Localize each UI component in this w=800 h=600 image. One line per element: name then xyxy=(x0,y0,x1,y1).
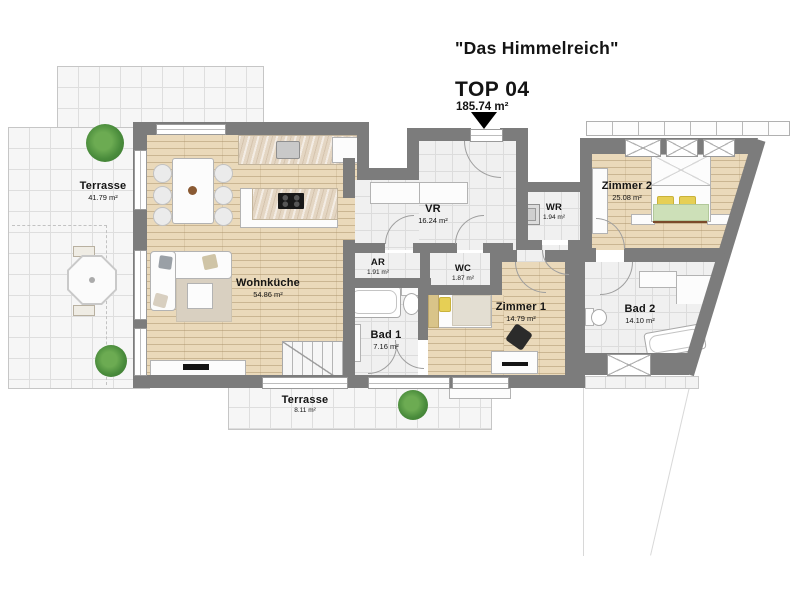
blanket xyxy=(452,295,491,326)
terrace-top-left xyxy=(57,66,264,129)
plant-icon xyxy=(86,124,124,162)
dining-chair xyxy=(153,164,172,183)
dining-chair xyxy=(153,186,172,205)
coffee-table xyxy=(187,283,213,309)
room-label-bad2: Bad 2 14.10 m² xyxy=(625,303,656,325)
vanity xyxy=(639,271,677,288)
terrace-chair xyxy=(73,305,95,316)
parasol-pole xyxy=(89,277,95,283)
room-label-wc: WC 1.87 m² xyxy=(452,264,474,283)
exterior-ledge xyxy=(585,376,699,389)
window xyxy=(368,377,450,389)
wall-segment xyxy=(420,285,502,295)
room-label-vr: VR 16.24 m² xyxy=(418,203,448,225)
window xyxy=(703,139,735,157)
window-sill xyxy=(449,388,511,399)
dining-chair xyxy=(153,207,172,226)
wall-segment xyxy=(580,140,592,262)
unit-label: TOP 04 xyxy=(455,78,530,102)
sofa-cushion xyxy=(158,255,173,270)
plant-icon xyxy=(95,345,127,377)
table-decor xyxy=(188,186,197,195)
wall-segment xyxy=(624,248,728,262)
sofa-cushion xyxy=(202,254,219,271)
blanket xyxy=(653,204,709,221)
window xyxy=(134,250,147,320)
room-label-terrasse-links: Terrasse 41.79 m² xyxy=(80,180,127,202)
wall-segment xyxy=(345,243,385,253)
plant-icon xyxy=(398,390,428,420)
kitchen-sink xyxy=(276,141,300,159)
wall-segment xyxy=(418,285,428,340)
wardrobe xyxy=(370,182,468,204)
wall-segment xyxy=(500,250,517,262)
entrance-arrow-icon xyxy=(471,112,497,129)
tv xyxy=(183,364,209,370)
plan-title: "Das Himmelreich" xyxy=(455,38,619,59)
bed-headboard xyxy=(428,293,439,328)
dining-chair xyxy=(214,186,233,205)
window xyxy=(607,354,651,376)
wall-segment xyxy=(343,240,355,388)
window xyxy=(666,139,698,157)
floorplan-canvas: "Das Himmelreich" TOP 04 185.74 m² xyxy=(0,0,800,600)
wall-segment xyxy=(516,240,542,250)
room-label-zimmer2: Zimmer 2 25.08 m² xyxy=(602,180,653,202)
window xyxy=(625,139,661,157)
wall-segment xyxy=(343,158,355,198)
bathtub xyxy=(347,286,401,318)
roof-edge-line xyxy=(583,388,584,556)
cooktop xyxy=(278,193,304,209)
balcony-railing xyxy=(586,121,790,136)
window xyxy=(134,150,147,210)
entrance-door xyxy=(470,129,503,142)
wall-segment xyxy=(516,135,528,250)
toilet xyxy=(591,309,607,326)
window xyxy=(156,124,226,135)
room-label-terrasse-unten: Terrasse 8.11 m² xyxy=(282,394,329,414)
roof-edge-line xyxy=(650,378,692,556)
wall-segment xyxy=(133,375,585,388)
room-label-wr: WR 1.94 m² xyxy=(543,203,565,222)
room-label-wohnkueche: Wohnküche 54.86 m² xyxy=(236,277,300,299)
terrace-edge-dashed-line xyxy=(12,225,107,226)
room-label-bad1: Bad 1 7.16 m² xyxy=(371,329,402,351)
dining-chair xyxy=(214,164,233,183)
room-label-ar: AR 1.91 m² xyxy=(367,258,389,277)
dining-chair xyxy=(214,207,233,226)
terrace-door xyxy=(262,377,348,389)
bed-canopy xyxy=(651,154,711,186)
desk-monitor xyxy=(502,362,528,366)
pillow xyxy=(439,297,451,312)
window xyxy=(134,328,147,376)
room-label-zimmer1: Zimmer 1 14.79 m² xyxy=(496,301,547,323)
window xyxy=(452,377,509,389)
wall-segment xyxy=(407,128,471,141)
